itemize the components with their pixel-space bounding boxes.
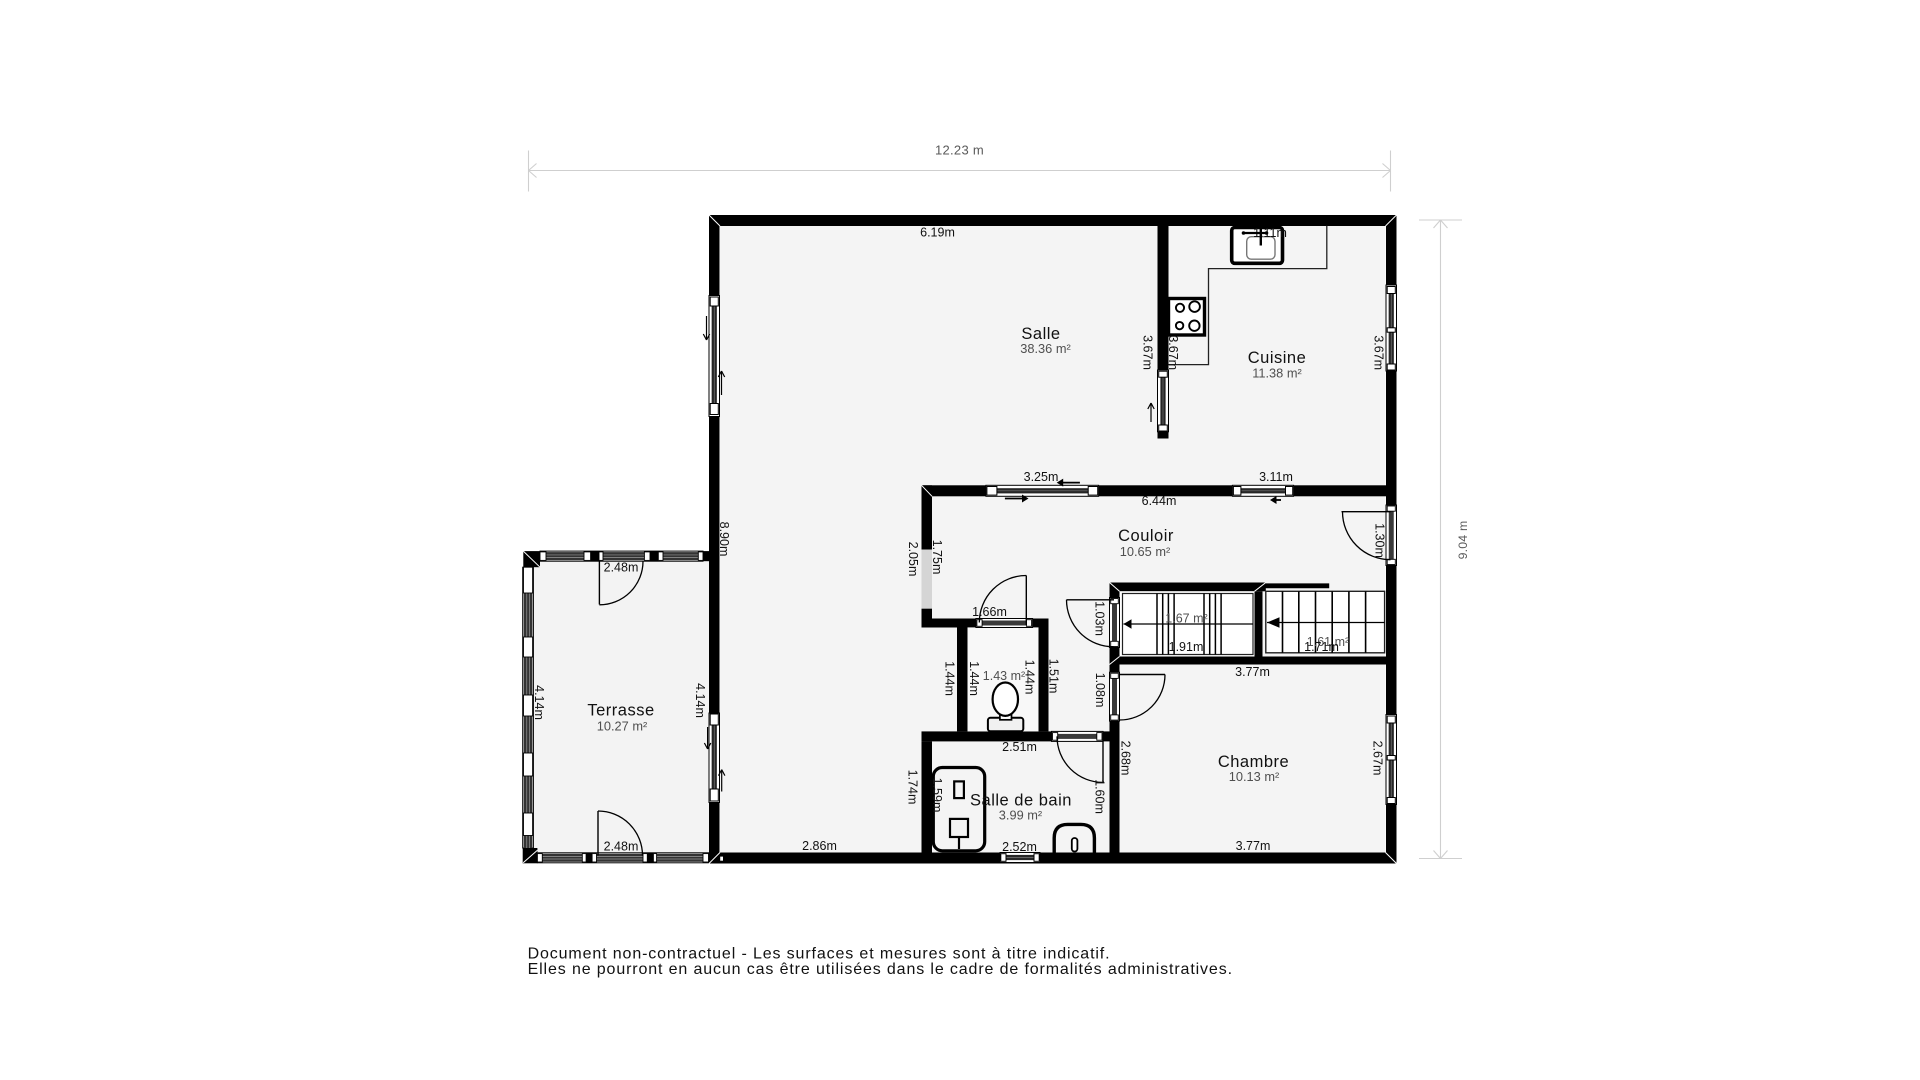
svg-text:1.75m: 1.75m [930,540,944,575]
svg-text:1.51m: 1.51m [1047,659,1061,694]
svg-text:4.14m: 4.14m [532,685,546,720]
svg-text:1.03m: 1.03m [1093,601,1107,636]
svg-text:2.52m: 2.52m [1002,840,1037,854]
svg-text:2.51m: 2.51m [1002,740,1037,754]
svg-text:3.11m: 3.11m [1259,470,1293,484]
svg-text:3.67m: 3.67m [1372,335,1386,370]
svg-text:1.08m: 1.08m [1093,673,1107,708]
svg-text:Document non-contractuel - Les: Document non-contractuel - Les surfaces … [528,946,1111,963]
svg-text:1.71m: 1.71m [1304,640,1339,654]
svg-text:2.68m: 2.68m [1119,741,1133,776]
svg-text:10.13 m²: 10.13 m² [1229,769,1280,784]
svg-text:11.38 m²: 11.38 m² [1252,366,1302,381]
svg-text:1.44m: 1.44m [943,661,957,696]
svg-text:10.27 m²: 10.27 m² [597,719,648,734]
svg-text:2.48m: 2.48m [604,561,639,575]
svg-text:10.65 m²: 10.65 m² [1120,544,1171,559]
svg-text:2.67m: 2.67m [1371,741,1385,776]
svg-text:3.67m: 3.67m [1166,335,1180,370]
svg-text:1.44m: 1.44m [1023,660,1037,695]
svg-text:1.66m: 1.66m [972,605,1007,619]
svg-text:Couloir: Couloir [1118,527,1174,545]
svg-text:4.14m: 4.14m [693,683,707,718]
svg-text:2.48m: 2.48m [604,839,639,853]
svg-text:1.67 m²: 1.67 m² [1165,612,1207,626]
svg-text:2.05m: 2.05m [906,542,920,577]
svg-text:1.44m: 1.44m [967,661,981,696]
svg-text:8.90m: 8.90m [717,522,731,557]
svg-text:1.60m: 1.60m [1093,779,1107,814]
svg-text:3.99 m²: 3.99 m² [999,808,1043,823]
svg-text:38.36 m²: 38.36 m² [1020,341,1071,356]
svg-text:3.77m: 3.77m [1236,839,1271,853]
svg-text:6.19m: 6.19m [920,226,955,240]
svg-text:Elles ne pourront en aucun cas: Elles ne pourront en aucun cas être util… [528,961,1233,978]
svg-text:Cuisine: Cuisine [1248,349,1307,367]
svg-text:3.25m: 3.25m [1024,470,1059,484]
svg-text:12.23 m: 12.23 m [935,143,984,158]
svg-text:1.59m: 1.59m [930,778,944,813]
svg-text:1.91m: 1.91m [1169,640,1204,654]
svg-text:3.77m: 3.77m [1235,665,1270,679]
svg-text:2.86m: 2.86m [802,839,837,853]
svg-text:1.43 m²: 1.43 m² [983,669,1025,683]
svg-text:3.67m: 3.67m [1141,335,1155,370]
svg-text:1.74m: 1.74m [906,770,920,805]
svg-text:1.30m: 1.30m [1373,523,1387,558]
svg-text:6.44m: 6.44m [1142,494,1177,508]
svg-text:Terrasse: Terrasse [587,701,654,719]
svg-text:9.04 m: 9.04 m [1456,521,1470,560]
